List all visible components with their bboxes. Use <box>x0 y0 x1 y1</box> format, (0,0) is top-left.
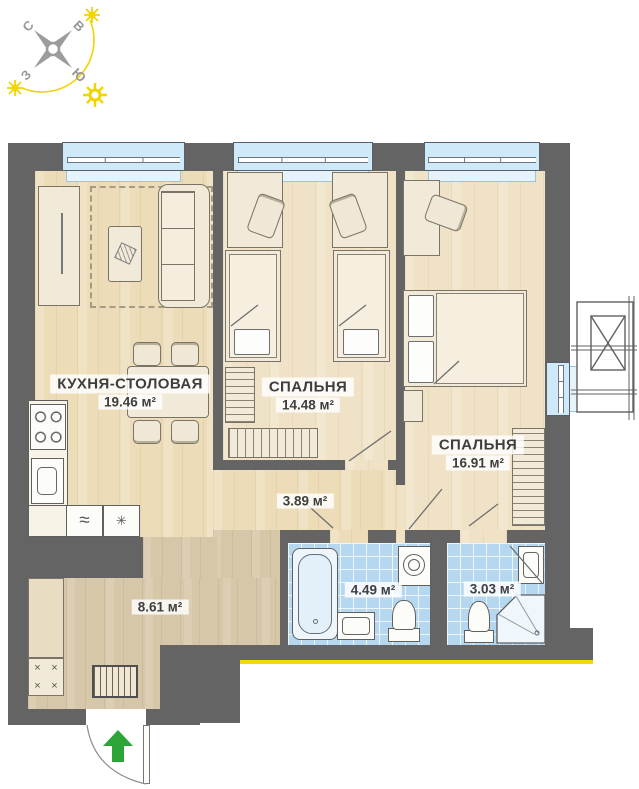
room-name: КУХНЯ-СТОЛОВАЯ <box>50 375 210 394</box>
coffee-table <box>108 226 142 282</box>
bathtub <box>292 548 338 640</box>
tv-unit <box>38 186 80 306</box>
room-area: 3.03 м² <box>464 582 521 597</box>
compass-letter-west: З <box>18 67 34 83</box>
kitchen-sink <box>31 458 64 504</box>
dishwasher: ✳ <box>103 505 140 537</box>
wall-left-lower <box>8 578 28 725</box>
cross-icon: × <box>29 681 46 692</box>
window-frame <box>238 157 368 163</box>
mattress <box>436 293 524 384</box>
wc-sink <box>518 546 544 584</box>
sofa <box>158 184 210 308</box>
room-name: СПАЛЬНЯ <box>432 436 524 455</box>
window-bedroom2-side <box>546 362 570 416</box>
room-area: 19.46 м² <box>98 395 162 410</box>
wall-bottom-bath <box>240 645 593 660</box>
pillow <box>408 295 434 337</box>
dining-chair <box>133 342 161 366</box>
corridor-floor-connector <box>143 537 217 578</box>
sink-basin <box>342 617 370 635</box>
wall-bedroom1-door-stub <box>388 460 396 470</box>
room-label-bedroom2: СПАЛЬНЯ 16.91 м² <box>432 436 524 471</box>
hall-wardrobe <box>28 578 64 658</box>
dining-chair <box>133 420 161 444</box>
wall-bottom-left-a <box>8 709 86 725</box>
window-kitchen <box>62 142 185 171</box>
room-label-bedroom1: СПАЛЬНЯ 14.48 м² <box>262 378 354 413</box>
entrance-arrow-stem <box>112 746 124 762</box>
sun-icon-large <box>83 83 107 107</box>
pillow <box>408 341 434 383</box>
extractor-icon: ✳ <box>104 506 139 536</box>
doormat <box>92 665 138 698</box>
bedroom1-door-threshold <box>345 460 388 470</box>
toilet-bowl <box>392 600 416 630</box>
window-frame <box>558 365 564 414</box>
room-label-kitchen: КУХНЯ-СТОЛОВАЯ 19.46 м² <box>50 375 210 410</box>
room-area: 8.61 м² <box>132 600 189 615</box>
wall-bath-divider <box>430 530 447 645</box>
washer-door-inner <box>408 559 420 571</box>
window-bedroom1 <box>233 142 373 171</box>
wall-corridor-bath-block <box>160 645 240 723</box>
room-label-hallway: 3.89 м² <box>277 494 334 509</box>
room-label-bathroom: 4.49 м² <box>345 583 402 598</box>
nightstand <box>403 390 423 422</box>
wall-bedroom2-bottom-b <box>507 530 545 543</box>
facade-sun-line <box>240 660 593 664</box>
window-sill-side <box>570 366 579 412</box>
floorplan-canvas: С В З Ю <box>0 0 639 789</box>
shoe-cabinet: × × × × <box>28 658 64 696</box>
entrance-arrow <box>103 730 133 768</box>
room-area: 3.89 м² <box>277 494 334 509</box>
window-sill <box>428 171 536 182</box>
window-bedroom2 <box>424 142 540 171</box>
dining-chair <box>171 342 199 366</box>
washing-machine: ≈ <box>66 505 103 537</box>
single-bed <box>333 250 390 362</box>
drain <box>313 619 318 624</box>
plant-icon <box>114 242 137 265</box>
dining-chair <box>171 420 199 444</box>
entrance-arrow-head <box>103 730 133 746</box>
exterior-basket <box>571 296 637 420</box>
toilet-tank <box>388 628 420 642</box>
sofa-seat <box>161 191 195 301</box>
wall-kitchen-corridor <box>8 537 143 578</box>
sink-basin <box>523 552 539 578</box>
wall-bathroom-left <box>280 530 288 645</box>
pillow <box>343 329 379 355</box>
room-name: СПАЛЬНЯ <box>262 378 354 397</box>
compass-rose: С В З Ю <box>4 2 122 120</box>
compass-letter-north: С <box>19 17 37 35</box>
room-label-wc: 3.03 м² <box>464 582 521 597</box>
compass-star-center <box>47 43 59 55</box>
single-bed <box>225 250 281 362</box>
wall-bedroom1-bottom <box>213 460 345 470</box>
stove <box>30 404 66 450</box>
wall-kitchen-bedroom1 <box>213 170 223 467</box>
ensuite-door-threshold <box>460 530 507 543</box>
sink-basin <box>37 467 57 495</box>
pillow <box>234 329 270 355</box>
tv-icon <box>61 213 63 274</box>
entrance-door-leaf <box>143 725 150 784</box>
washing-machine-bath <box>398 546 431 586</box>
radiator <box>225 367 255 423</box>
cross-icon: × <box>29 663 46 674</box>
bathroom-sink <box>337 612 375 640</box>
toilet-bowl <box>468 601 490 632</box>
double-bed <box>403 290 527 387</box>
room-area: 14.48 м² <box>276 398 340 413</box>
room-area: 4.49 м² <box>345 583 402 598</box>
sun-icon <box>7 80 23 96</box>
compass-letter-east: В <box>70 17 87 34</box>
window-frame <box>428 157 535 163</box>
room-label-corridor: 8.61 м² <box>132 600 189 615</box>
sun-icon <box>84 7 100 23</box>
washing-machine-icon: ≈ <box>67 506 102 536</box>
bathroom-door-threshold <box>330 530 368 543</box>
room-area: 16.91 м² <box>446 456 510 471</box>
cross-icon: × <box>46 681 63 692</box>
window-frame <box>67 157 181 163</box>
wall-corner-block <box>570 628 593 660</box>
window-sill <box>66 171 181 182</box>
entrance-threshold <box>86 709 146 725</box>
cross-icon: × <box>46 663 63 674</box>
wardrobe <box>228 428 318 458</box>
bedroom2-door-threshold <box>396 485 405 543</box>
